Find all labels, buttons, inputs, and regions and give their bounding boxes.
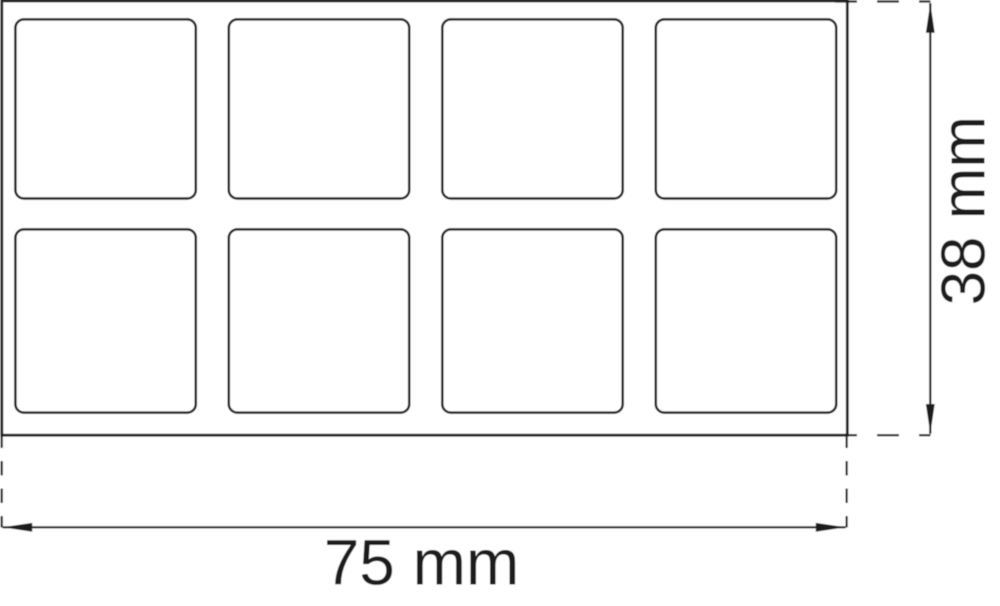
svg-text:75 mm: 75 mm [324, 527, 520, 599]
svg-text:38 mm: 38 mm [930, 116, 999, 305]
